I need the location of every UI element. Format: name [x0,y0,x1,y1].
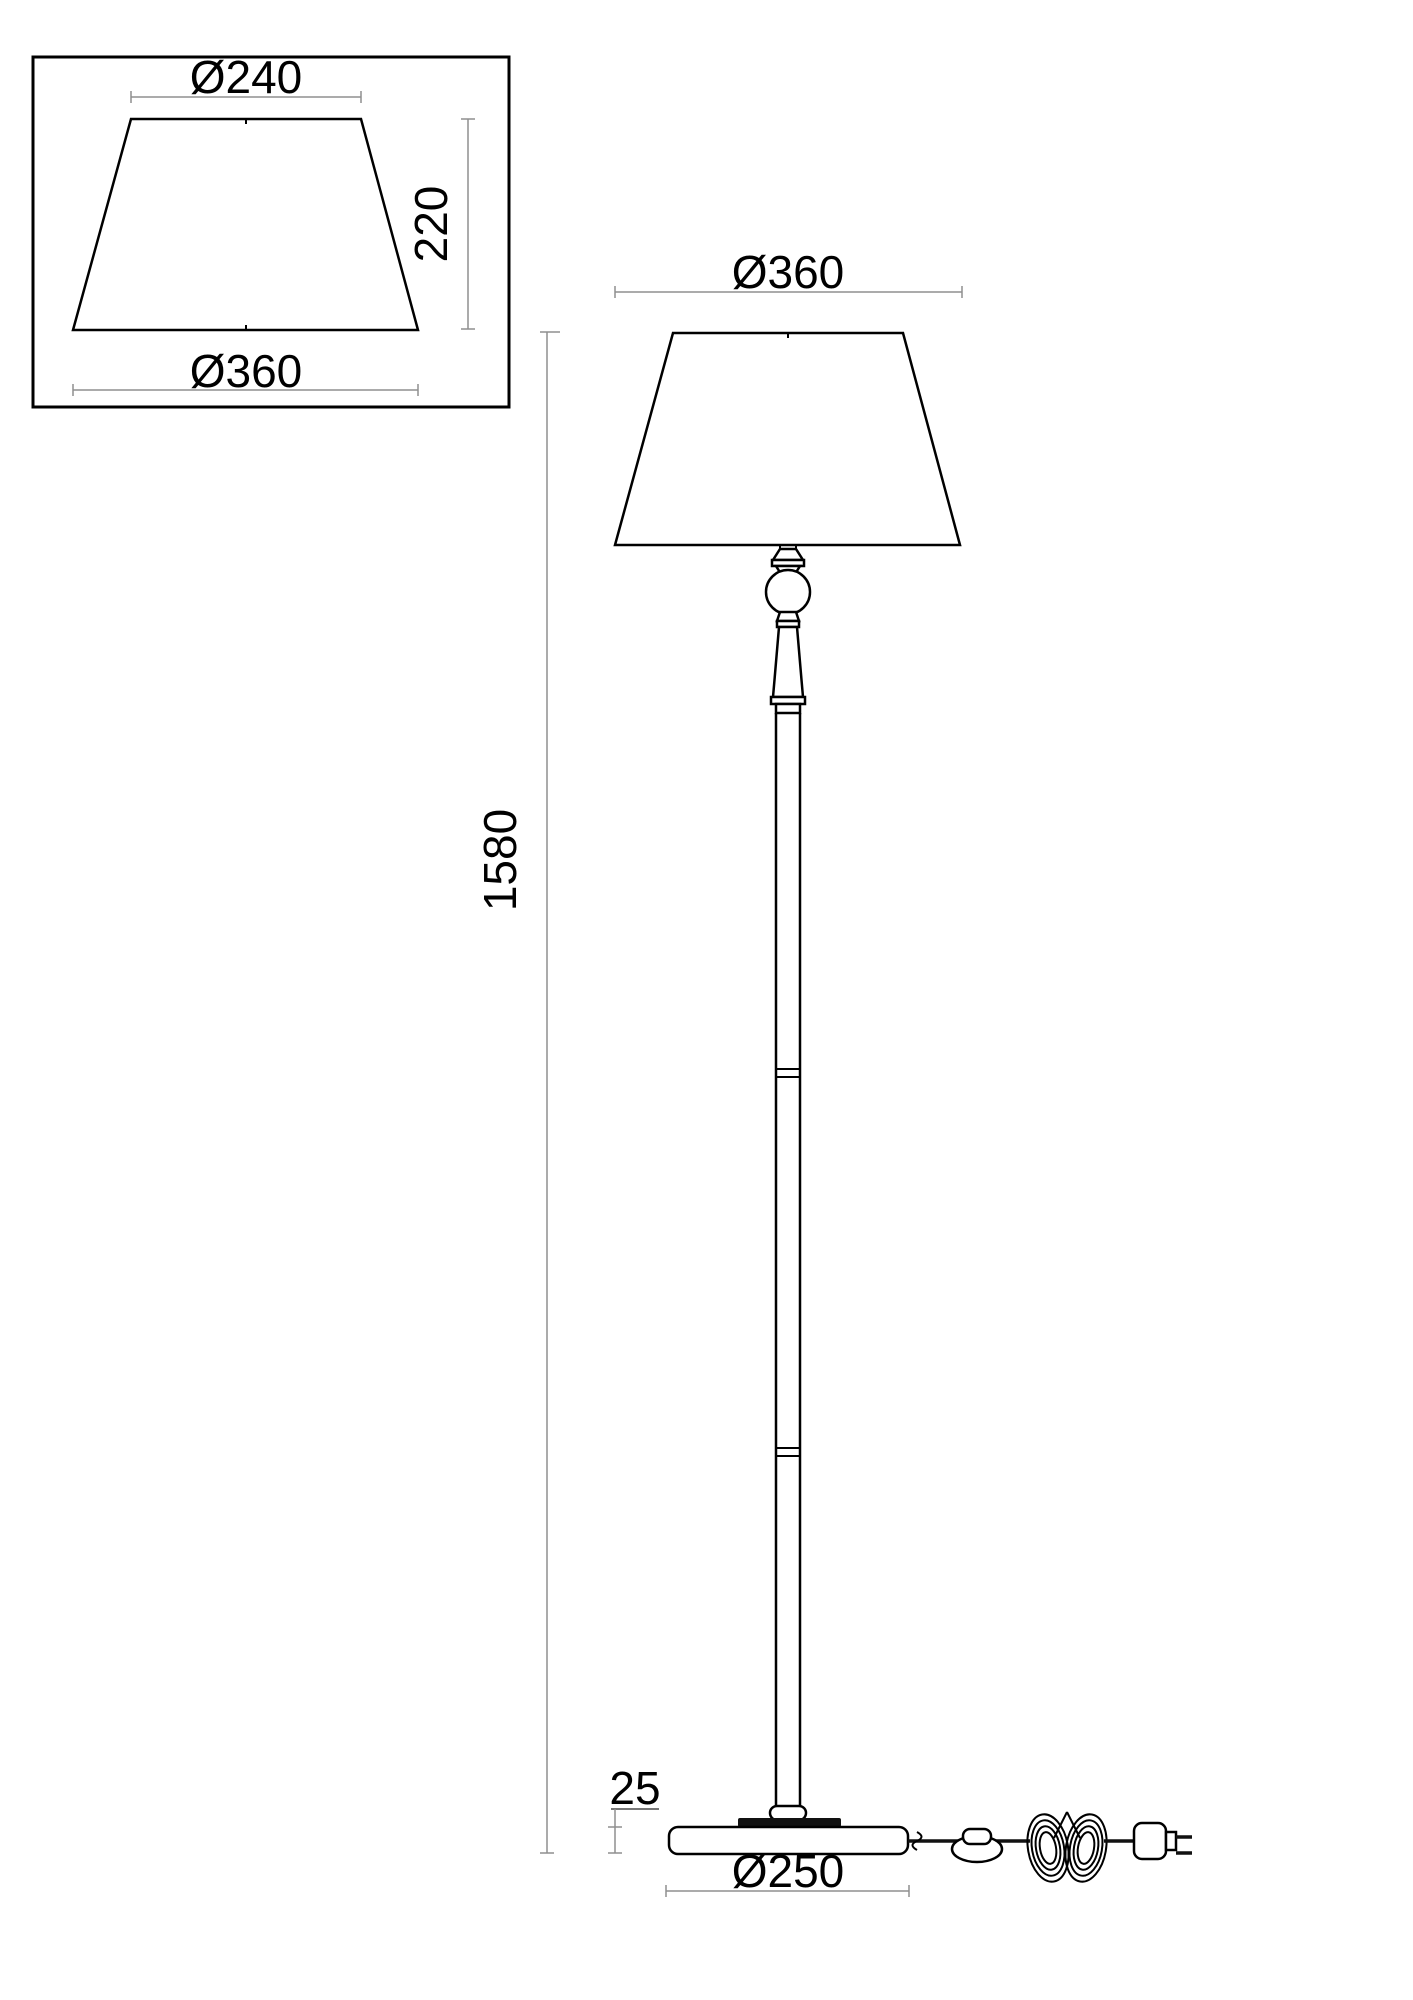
foot-switch [952,1829,1002,1862]
stem-joint-lower [776,1448,800,1456]
lamp-stem [776,713,800,1812]
power-plug [1134,1823,1192,1859]
stem-foot-flange [738,1806,841,1827]
dim-detail-bottom-diameter: Ø360 [73,345,418,397]
dim-label-detail-height: 220 [405,186,457,263]
main-lamp-view: Ø360 [474,246,1192,1897]
dim-label-detail-bottom-diameter: Ø360 [190,345,303,397]
dim-detail-top-diameter: Ø240 [131,51,361,103]
dim-label-base-diameter: Ø250 [732,1845,845,1897]
dim-label-base-height: 25 [609,1762,660,1814]
dim-detail-height: 220 [405,119,475,329]
detail-shade-outline [73,119,418,330]
floor-lamp-dimension-drawing: Ø240 220 Ø360 Ø360 [0,0,1413,2000]
dim-label-total-height: 1580 [474,809,526,911]
dim-shade-diameter: Ø360 [615,246,962,298]
dim-label-shade-diameter: Ø360 [732,246,845,298]
drawing-canvas: Ø240 220 Ø360 Ø360 [0,0,1413,2000]
lamp-finial-ball [766,570,810,614]
lamp-spindle [771,612,805,713]
power-cord-assembly [908,1811,1192,1885]
cord-coil [1022,1811,1111,1885]
dim-base-height: 25 [608,1762,661,1853]
lamp-shade [615,333,960,545]
dim-total-height: 1580 [474,332,560,1853]
shade-detail-inset: Ø240 220 Ø360 [33,51,509,407]
stem-joint-upper [776,1069,800,1077]
dim-label-detail-top-diameter: Ø240 [190,51,303,103]
